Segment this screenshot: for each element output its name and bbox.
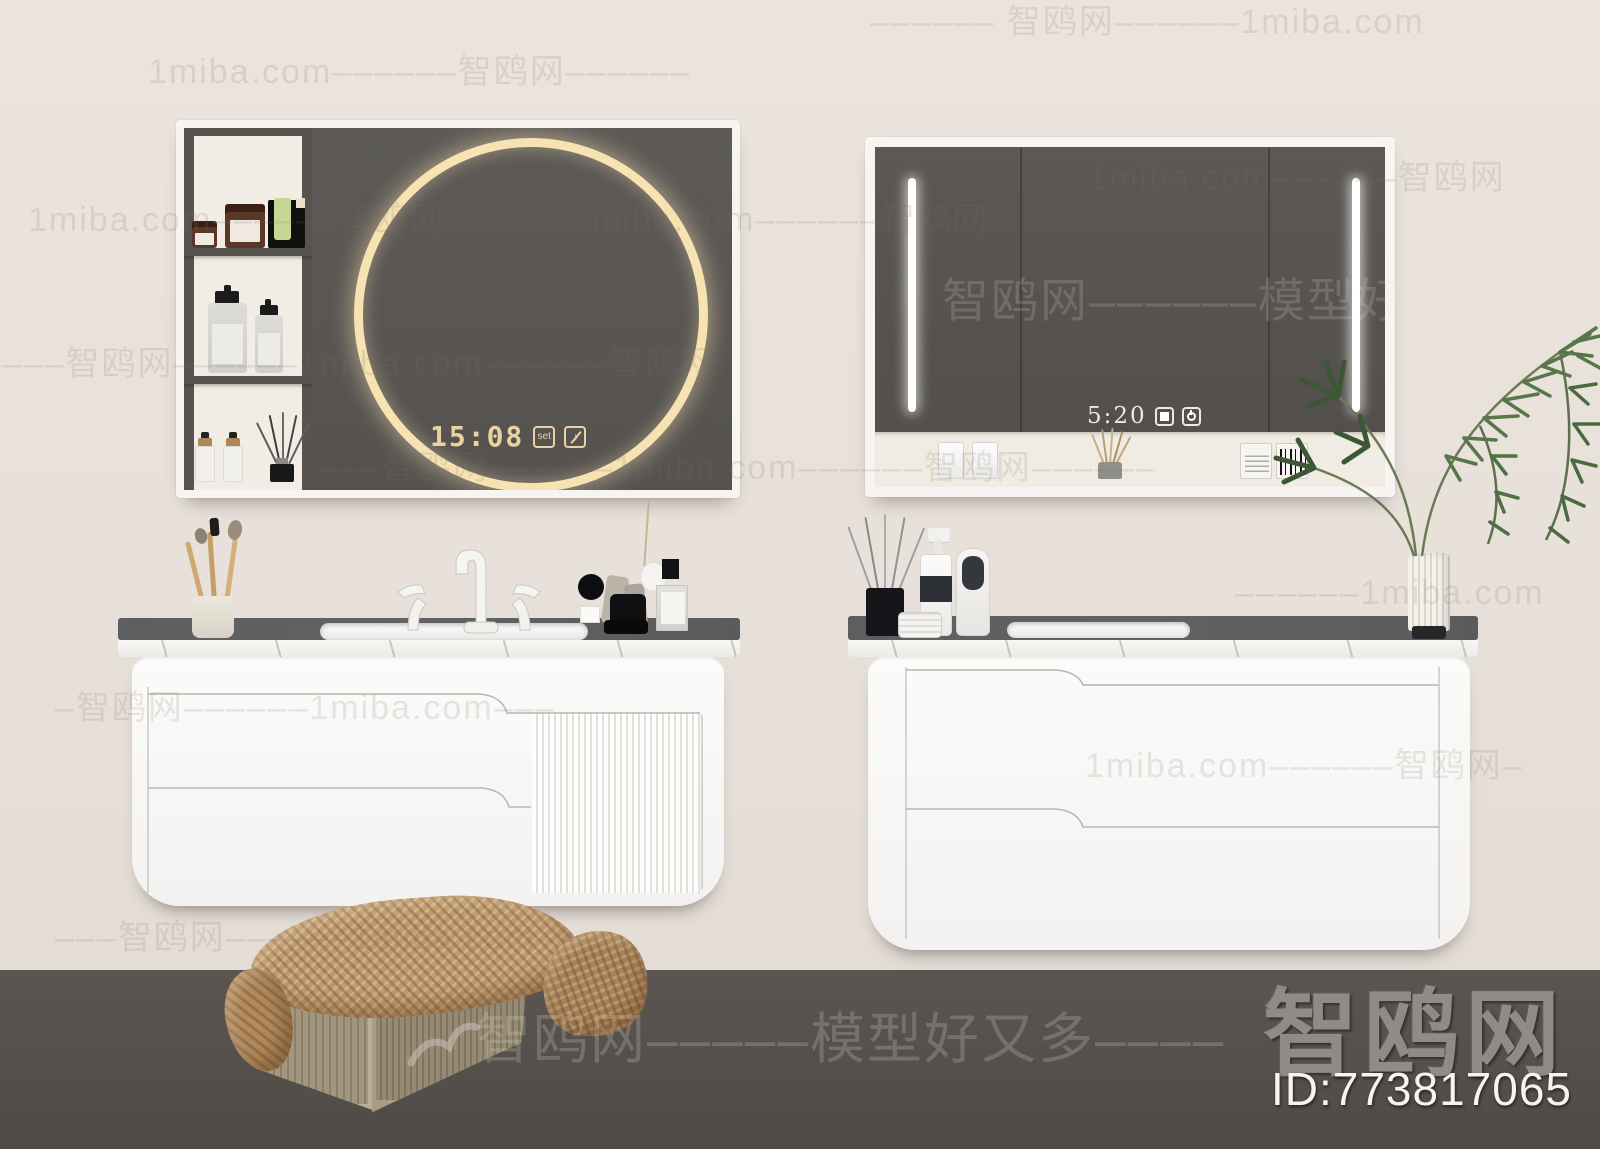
black-pouch-base — [604, 620, 648, 634]
mirror-clock-display: 5:20 — [1087, 403, 1201, 429]
left-mirror-cabinet: 15:08 set ♪ — [176, 120, 740, 498]
shelf-top-band — [184, 128, 312, 136]
mirror-clock-display: 15:08 set ♪ — [430, 420, 586, 453]
cream-tube-cap — [962, 556, 984, 590]
right-sink-basin — [1007, 622, 1190, 638]
set-button: set — [533, 426, 555, 448]
mini-diffuser-vase — [1098, 462, 1122, 479]
glass-cup — [972, 442, 998, 479]
jar-label — [230, 220, 260, 242]
right-vanity-cabinet — [868, 657, 1470, 950]
white-card — [580, 606, 600, 623]
ribbed-jar — [898, 612, 942, 638]
faucet — [368, 538, 568, 634]
clock-time: 5:20 — [1087, 403, 1147, 429]
mirror-door-seam — [1020, 147, 1022, 432]
palm-frond-leaflets — [1446, 328, 1600, 480]
bamboo-leaves — [1276, 362, 1368, 482]
shelf-board — [184, 248, 312, 256]
defog-icon — [1155, 407, 1174, 426]
left-counter-marble-edge — [118, 640, 740, 657]
clock-time: 15:08 — [430, 420, 524, 453]
box-tape — [296, 198, 305, 208]
model-id-label: ID:773817065 — [1271, 1062, 1572, 1116]
drawer-seam-lines — [868, 657, 1470, 950]
jar-label — [195, 233, 214, 245]
led-strip-left — [908, 178, 916, 412]
left-vanity-cabinet — [132, 657, 724, 906]
left-mirror-glass: 15:08 set ♪ — [312, 128, 732, 490]
pump-bottle-band — [920, 576, 952, 602]
gull-watermark-icon — [400, 1015, 488, 1091]
pump-bottle-label — [258, 333, 280, 365]
glass-cup — [938, 442, 964, 479]
shelf-side-wall — [184, 128, 194, 490]
pump-bottle-label — [212, 324, 243, 364]
brush-tip — [209, 518, 219, 537]
power-icon — [1182, 407, 1201, 426]
music-bluetooth-icon: ♪ — [564, 426, 586, 448]
drawer-seam-lines — [132, 657, 724, 906]
drooping-frond-leaflets — [1550, 384, 1600, 542]
scene-bathroom-vanity-render: 15:08 set ♪ 5:20 — [0, 0, 1600, 1149]
black-flacon — [662, 559, 679, 579]
diffuser-bottle — [270, 464, 294, 482]
dropper-bottle — [223, 446, 243, 482]
potted-plant — [1240, 296, 1600, 650]
green-towel-roll — [274, 198, 291, 240]
compact-powder — [578, 574, 604, 600]
left-cabinet-shelf-column — [184, 128, 312, 490]
perfume-bottle — [656, 585, 688, 631]
shelf-board — [184, 376, 312, 384]
brush-cup — [192, 596, 234, 638]
dropper-bottle — [195, 446, 215, 482]
